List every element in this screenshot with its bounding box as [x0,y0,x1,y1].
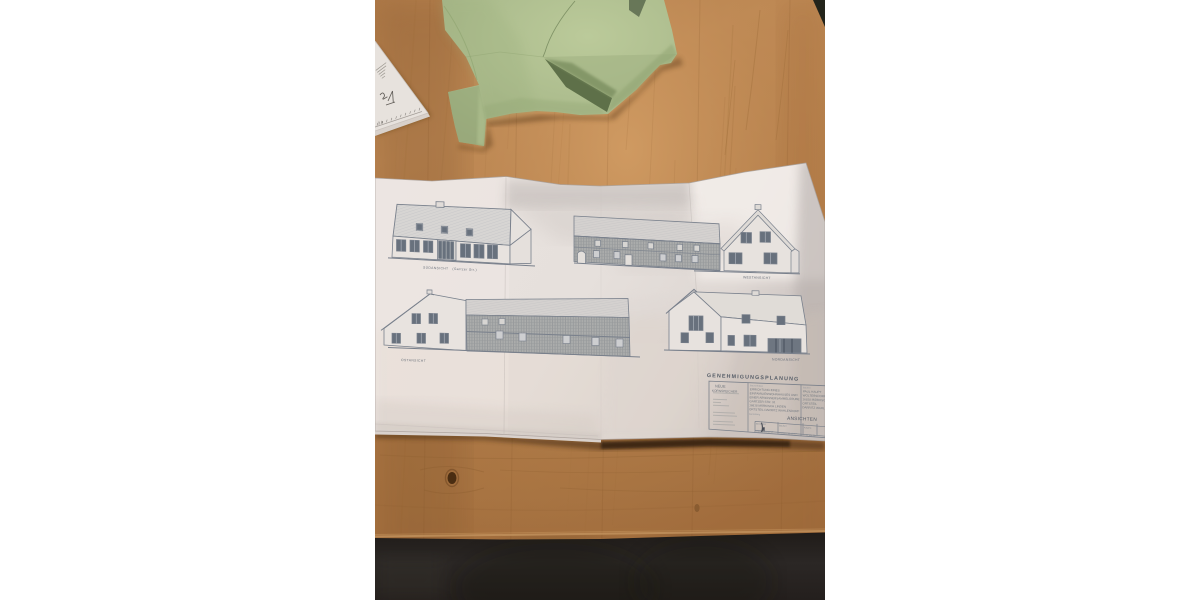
svg-text:Bauherr: Bauherr [779,424,787,427]
svg-text:NORDANSICHT: NORDANSICHT [772,358,800,362]
svg-text:Aufgest.: Aufgest. [804,426,813,429]
svg-text:WESTANSICHT: WESTANSICHT [743,275,771,280]
svg-text:ANSICHTEN: ANSICHTEN [787,416,817,423]
svg-text:11 Ma 19: 11 Ma 19 [806,434,817,437]
svg-text:Darstellung: Darstellung [749,413,761,416]
